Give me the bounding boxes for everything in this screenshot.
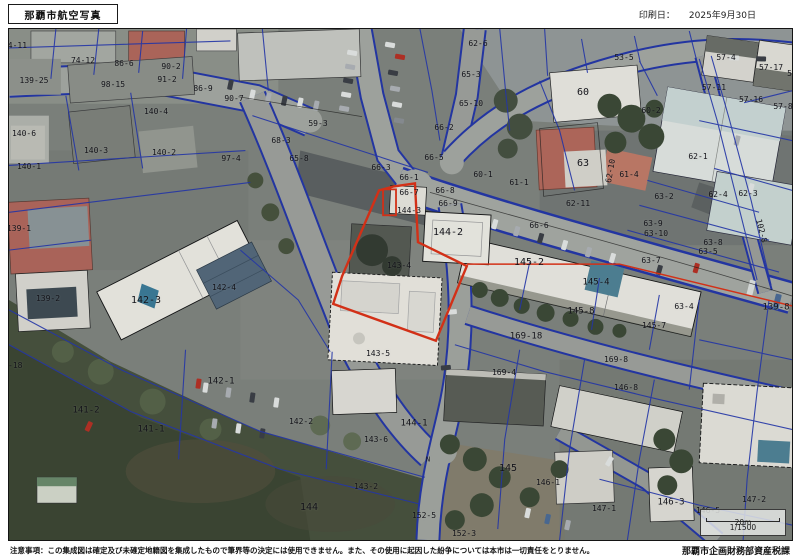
map-title-box: 那覇市航空写真 [8, 4, 118, 24]
print-date-value: 2025年9月30日 [689, 8, 756, 21]
aerial-photo-svg [9, 29, 792, 540]
page-title: 那覇市航空写真 [25, 7, 102, 22]
footer-bar: 注意事項：この集成図は確定及び未確定地籍図を集成したもので筆界等の決定には使用で… [0, 543, 800, 557]
print-date: 印刷日： 2025年9月30日 [639, 8, 756, 21]
scale-bar: 20m 1/1500 [700, 509, 786, 536]
photo-tint-overlay [9, 29, 792, 540]
disclaimer-text: 注意事項：この集成図は確定及び未確定地籍図を集成したもので筆界等の決定には使用で… [10, 545, 594, 556]
print-date-label: 印刷日： [639, 8, 675, 21]
attribution-text: 那覇市企画財務部資産税課 [682, 544, 790, 557]
map-canvas: 74-1174-12139-2586-690-291-298-1586-990-… [8, 28, 793, 541]
scale-distance: 20m [735, 518, 752, 527]
aerial-photo-print-page: { "header": { "title": "那覇市航空写真", "print… [0, 0, 800, 557]
